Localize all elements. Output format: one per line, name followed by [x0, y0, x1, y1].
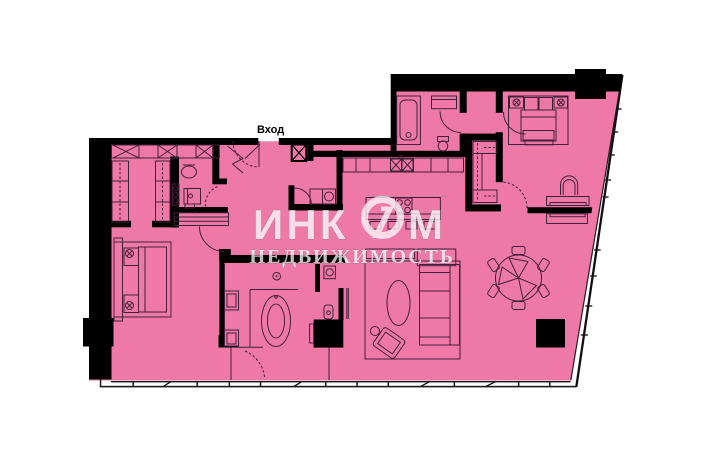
svg-text:ИНК: ИНК — [253, 201, 349, 248]
svg-text:НЕДВИЖИМОСТЬ: НЕДВИЖИМОСТЬ — [250, 246, 455, 268]
svg-text:Вход: Вход — [257, 124, 284, 136]
svg-text:М: М — [408, 201, 443, 248]
